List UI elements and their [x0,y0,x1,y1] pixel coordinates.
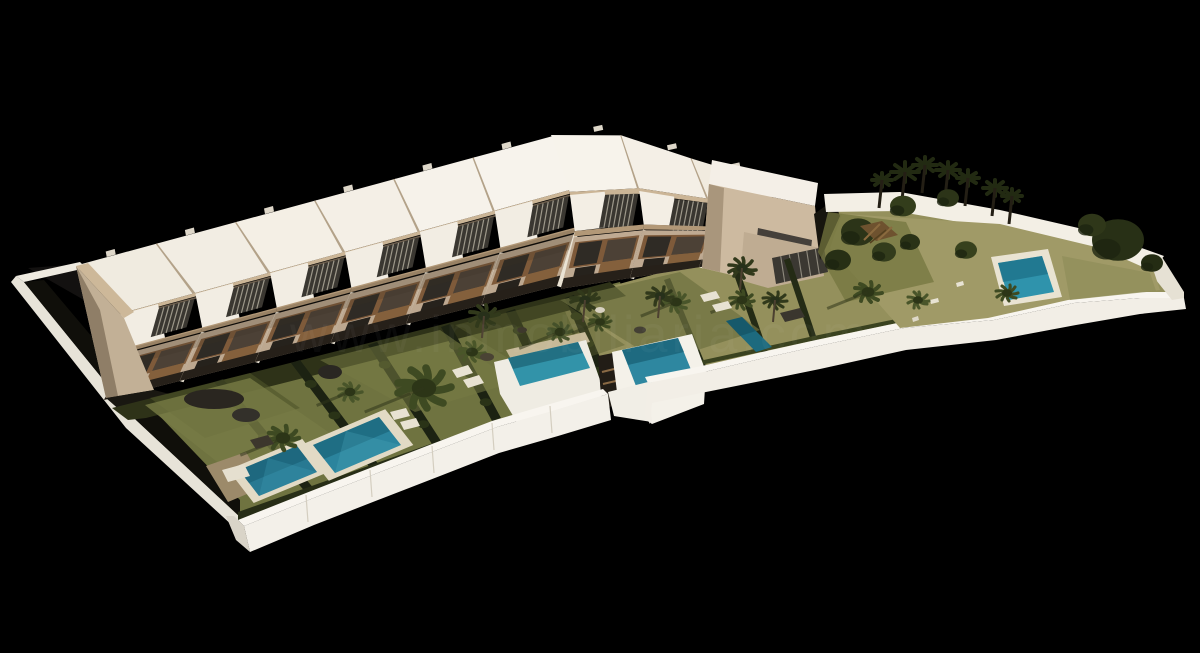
svg-text:www.inmobiliaria.com: www.inmobiliaria.com [289,306,870,364]
